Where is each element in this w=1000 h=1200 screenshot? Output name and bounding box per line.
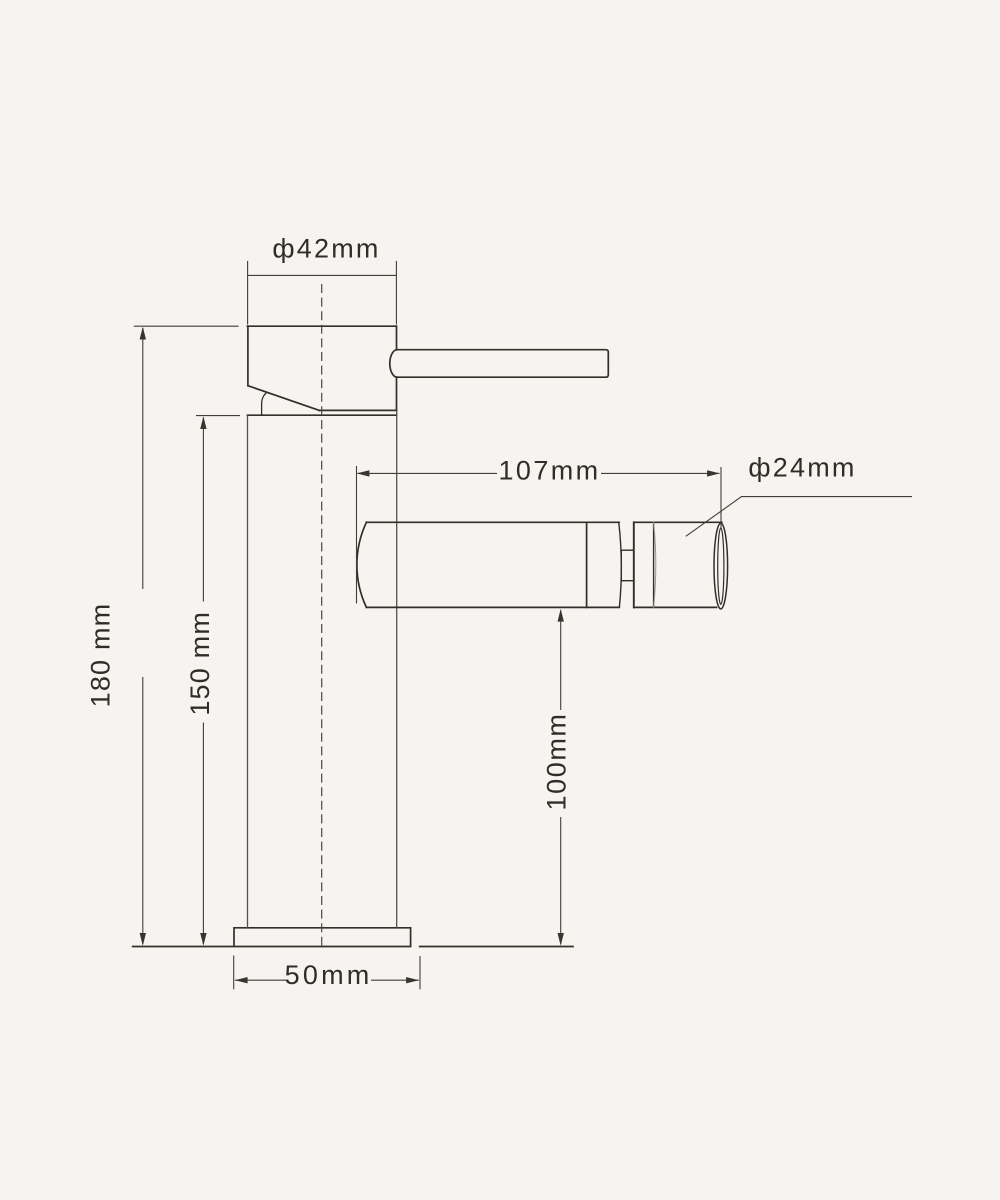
svg-text:180 mm: 180 mm: [85, 603, 115, 708]
svg-text:ф24mm: ф24mm: [748, 452, 856, 482]
svg-text:107mm: 107mm: [498, 455, 600, 485]
svg-text:50mm: 50mm: [285, 960, 373, 990]
svg-text:ф42mm: ф42mm: [272, 234, 380, 264]
svg-text:150 mm: 150 mm: [185, 611, 215, 716]
svg-text:100mm: 100mm: [541, 712, 571, 810]
